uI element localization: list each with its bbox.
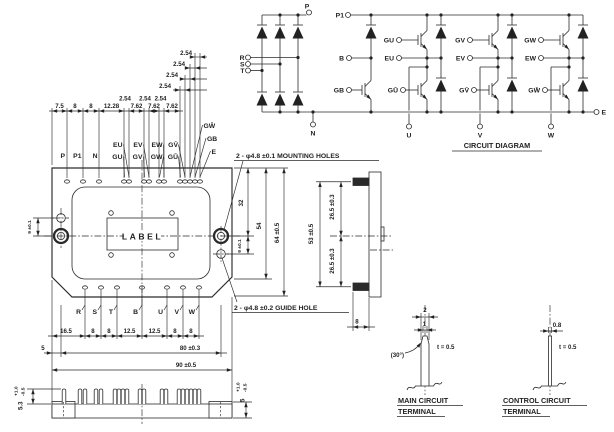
pin-label-gu-bar: GŪ: [168, 153, 178, 161]
terminal-label-w: W: [548, 133, 555, 140]
pin-label-w: W: [189, 309, 196, 316]
pin-label-ew: EW: [152, 142, 164, 149]
dim-5-tol-plus: +1.0: [236, 382, 242, 392]
dim-30deg: (30°): [391, 352, 404, 359]
dim-7.62: 7.62: [131, 103, 143, 110]
background: [0, 0, 614, 432]
emitter-label-eu: EU: [385, 56, 395, 63]
terminal-label-p1: P1: [336, 13, 345, 20]
gate-label-gv: GV: [455, 38, 465, 45]
dim-53: 53 ±0.5: [308, 223, 315, 244]
gate-label-gw-bar: GW̄: [528, 86, 540, 95]
dim-2.54: 2.54: [180, 50, 192, 57]
dim-5.3-tol-minus: -0.5: [21, 387, 27, 396]
dim-32: 32: [238, 199, 245, 206]
pin-label-e: E: [212, 149, 217, 156]
pin-label-ev: EV: [133, 142, 143, 149]
main-terminal-subtitle: TERMINAL: [398, 407, 436, 416]
dim-26.5-bottom: 26.5 ±0.3: [329, 248, 336, 274]
dim-2.54: 2.54: [139, 96, 151, 103]
control-terminal-thickness: t = 0.5: [559, 344, 577, 351]
pin-label-r: R: [76, 309, 81, 316]
dim-5.3: 5.3: [18, 401, 25, 410]
dim-2.54: 2.54: [159, 83, 171, 90]
terminal-label-p: P: [305, 4, 310, 11]
dim-80: 80 ±0.3: [180, 345, 201, 352]
dim-64: 64 ±0.5: [274, 222, 281, 243]
pin-label-p: P: [60, 153, 65, 160]
gate-label-gu-bar: GŪ: [388, 87, 398, 95]
dim-12.5: 12.5: [149, 328, 161, 335]
dim-7.62: 7.62: [166, 103, 178, 110]
gate-label-gu: GU: [384, 38, 394, 45]
package-label-text: LABEL: [122, 232, 163, 242]
pin-label-p1: P1: [73, 153, 82, 160]
emitter-label-ev: EV: [456, 56, 466, 63]
dim-0.8: 0.8: [553, 322, 562, 329]
dim-16.5: 16.5: [60, 328, 72, 335]
control-terminal-subtitle: TERMINAL: [503, 407, 541, 416]
dim-5.3-tol-plus: +1.0: [14, 386, 20, 396]
pin-label-s: S: [92, 309, 97, 316]
mounting-holes-note: 2 - φ4.8 ±0.1 MOUNTING HOLES: [236, 153, 340, 160]
pin-label-u: U: [158, 309, 163, 316]
dim-90: 90 ±0.5: [176, 362, 197, 369]
pin-label-b: B: [133, 309, 138, 316]
control-terminal-title: CONTROL CIRCUIT: [503, 396, 571, 405]
dim-9-right: 9 ±0.1: [237, 239, 243, 253]
dim-2.54: 2.54: [155, 96, 167, 103]
terminal-label-b: B: [339, 56, 344, 63]
terminal-label-v: V: [478, 133, 483, 140]
emitter-label-ew: EW: [525, 56, 537, 63]
datasheet-outline-drawing: R S T P N P1 B GB: [0, 0, 614, 432]
pin-label-n: N: [93, 153, 98, 160]
gate-label-gw: GW: [524, 38, 536, 45]
pin-label-gv: GV: [133, 154, 143, 161]
terminal-label-n: N: [311, 131, 316, 138]
main-terminal-title: MAIN CIRCUIT: [398, 396, 449, 405]
terminal-label-gb: GB: [334, 88, 344, 95]
circuit-caption: CIRCUIT DIAGRAM: [452, 141, 542, 151]
pin-label-gv-bar: GV̄: [168, 140, 178, 149]
main-terminal-thickness: t = 0.5: [437, 344, 455, 351]
terminal-label-e: E: [602, 110, 607, 117]
gate-label-gv-bar: GV̄: [459, 86, 469, 95]
dim-54: 54: [256, 222, 263, 229]
guide-hole-note: 2 - φ4.8 ±0.2 GUIDE HOLE: [234, 305, 318, 312]
pin-label-v: V: [174, 309, 179, 316]
pin-label-gw-bar: GW̄: [204, 121, 216, 130]
circuit-diagram-title: CIRCUIT DIAGRAM: [464, 141, 530, 150]
pin-label-gu: GU: [112, 154, 122, 161]
dim-2.54: 2.54: [173, 61, 185, 68]
dim-2.54: 2.54: [119, 96, 131, 103]
dim-12.5: 12.5: [124, 328, 136, 335]
dim-26.5-top: 26.5 ±0.3: [329, 194, 336, 220]
dim-9-left: 9 ±0.1: [27, 220, 33, 234]
terminal-label-u: U: [407, 133, 412, 140]
dim-7.62: 7.62: [148, 103, 160, 110]
dim-5-tol-minus: -0.5: [243, 383, 249, 392]
dim-12.28: 12.28: [104, 103, 120, 110]
dim-2.54: 2.54: [166, 72, 178, 79]
pin-label-gw: GW: [151, 154, 163, 161]
pin-label-eu: EU: [113, 142, 123, 149]
technical-drawing-canvas: R S T P N P1 B GB: [0, 0, 614, 432]
dim-7.5: 7.5: [55, 103, 64, 110]
pin-label-gb: GB: [207, 136, 217, 143]
